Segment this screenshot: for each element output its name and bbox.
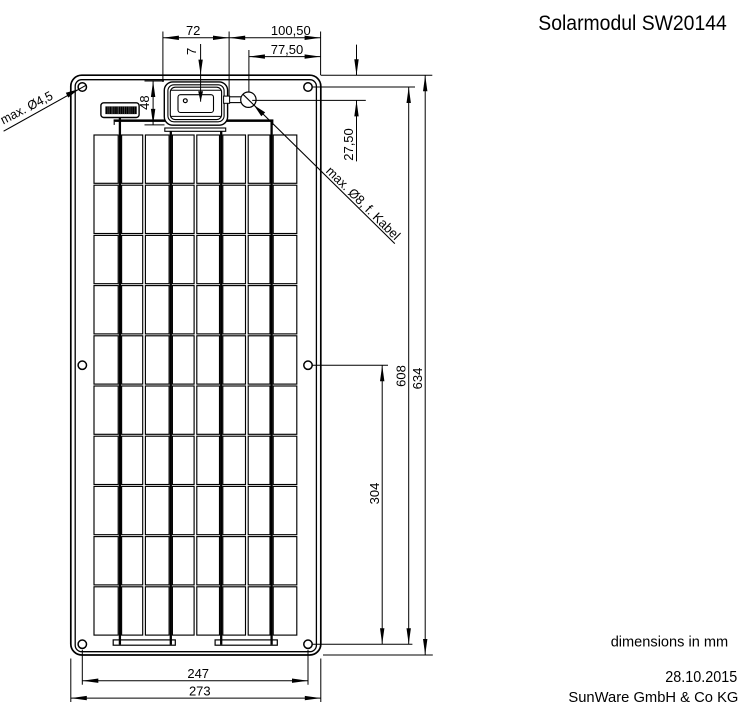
svg-text:SunWare GmbH & Co KG: SunWare GmbH & Co KG	[568, 690, 738, 706]
svg-text:608: 608	[394, 365, 409, 387]
svg-text:max. Ø8, f. Kabel: max. Ø8, f. Kabel	[323, 163, 403, 243]
svg-text:273: 273	[189, 684, 211, 699]
svg-text:28.10.2015: 28.10.2015	[665, 669, 737, 686]
svg-text:77,50: 77,50	[271, 42, 304, 57]
svg-text:304: 304	[367, 483, 382, 505]
svg-text:dimensions in mm: dimensions in mm	[611, 634, 729, 651]
svg-text:634: 634	[410, 368, 425, 390]
svg-text:48: 48	[137, 95, 152, 109]
svg-text:Solarmodul SW20144: Solarmodul SW20144	[538, 11, 727, 35]
svg-text:7: 7	[184, 48, 199, 55]
svg-text:100,50: 100,50	[271, 23, 311, 38]
svg-text:72: 72	[186, 23, 200, 38]
svg-text:27,50: 27,50	[341, 128, 356, 161]
svg-text:247: 247	[187, 666, 209, 681]
